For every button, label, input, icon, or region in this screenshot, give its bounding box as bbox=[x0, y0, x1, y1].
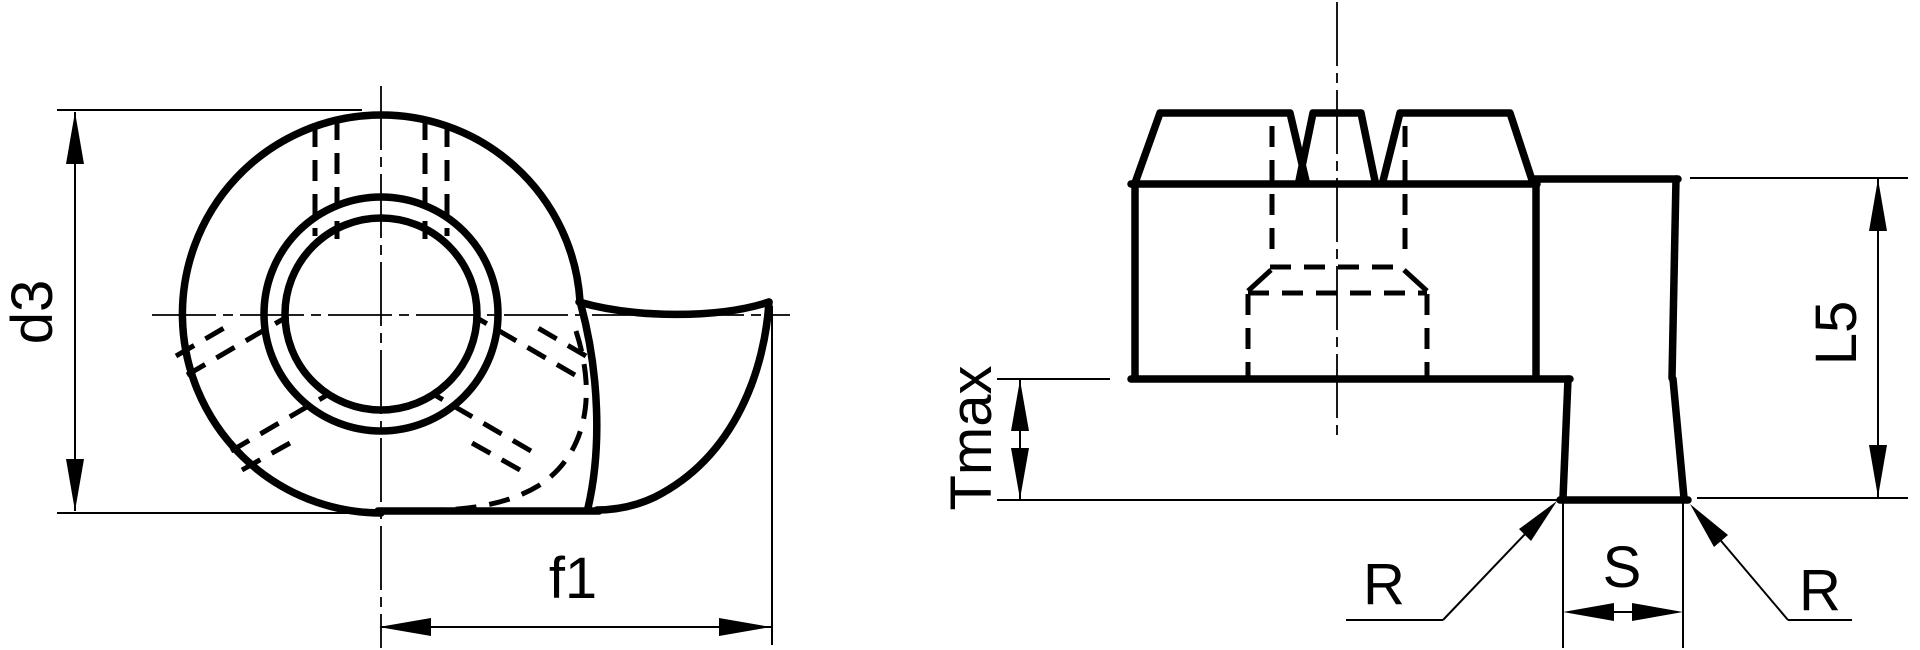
dim-label-r-left: R bbox=[1363, 552, 1405, 617]
side-view: Tmax L5 S R bbox=[939, 2, 1908, 648]
hidden-slot-right-wall bbox=[433, 394, 531, 451]
tmax-arrowhead-up bbox=[1011, 380, 1029, 431]
cap-left-segment bbox=[1135, 113, 1306, 183]
hidden-spiral-arc bbox=[434, 331, 586, 510]
front-view: d3 f1 bbox=[0, 86, 790, 648]
l5-arrowhead-up bbox=[1869, 179, 1887, 231]
s-arrowhead-right bbox=[1632, 603, 1683, 621]
hidden-slot-chamfer-right bbox=[1404, 270, 1427, 291]
cam-lobe-top-edge bbox=[579, 302, 769, 314]
dimension-s: S bbox=[1563, 503, 1683, 648]
d3-arrowhead-down bbox=[66, 459, 84, 511]
r-right-arrowhead bbox=[1690, 504, 1728, 547]
f1-arrowhead-right bbox=[719, 618, 771, 636]
s-arrowhead-left bbox=[1563, 603, 1614, 621]
dimension-d3: d3 bbox=[0, 110, 376, 513]
tmax-arrowhead-down bbox=[1011, 448, 1029, 499]
dimension-tmax: Tmax bbox=[939, 366, 1558, 511]
hidden-slot-right-chamfer bbox=[472, 443, 520, 470]
dim-label-s: S bbox=[1603, 535, 1642, 600]
callout-r-left: R bbox=[1346, 501, 1557, 620]
hidden-slot-left-wall bbox=[231, 394, 329, 451]
l5-arrowhead-down bbox=[1869, 445, 1887, 497]
dimension-l5: L5 bbox=[1690, 178, 1908, 498]
technical-drawing-canvas: d3 f1 bbox=[0, 0, 1920, 650]
hidden-slot-chamfer-left bbox=[1248, 270, 1271, 291]
dim-label-d3: d3 bbox=[0, 280, 65, 345]
dim-label-f1: f1 bbox=[549, 546, 597, 611]
dimension-f1: f1 bbox=[379, 306, 772, 645]
f1-arrowhead-left bbox=[379, 618, 431, 636]
dim-label-tmax: Tmax bbox=[939, 366, 1004, 511]
lobe-right-edge-lower bbox=[1673, 379, 1684, 498]
cam-step-edge bbox=[597, 302, 769, 510]
hidden-slot-left-chamfer bbox=[242, 443, 290, 470]
lobe-right-edge-upper bbox=[1672, 179, 1676, 378]
technical-drawing-page: d3 f1 bbox=[0, 0, 1920, 650]
callout-r-right: R bbox=[1690, 504, 1852, 623]
dim-label-r-right: R bbox=[1799, 558, 1841, 623]
d3-arrowhead-up bbox=[66, 112, 84, 164]
dim-label-l5: L5 bbox=[1804, 301, 1869, 366]
lobe-lower-left-edge bbox=[1563, 379, 1568, 498]
